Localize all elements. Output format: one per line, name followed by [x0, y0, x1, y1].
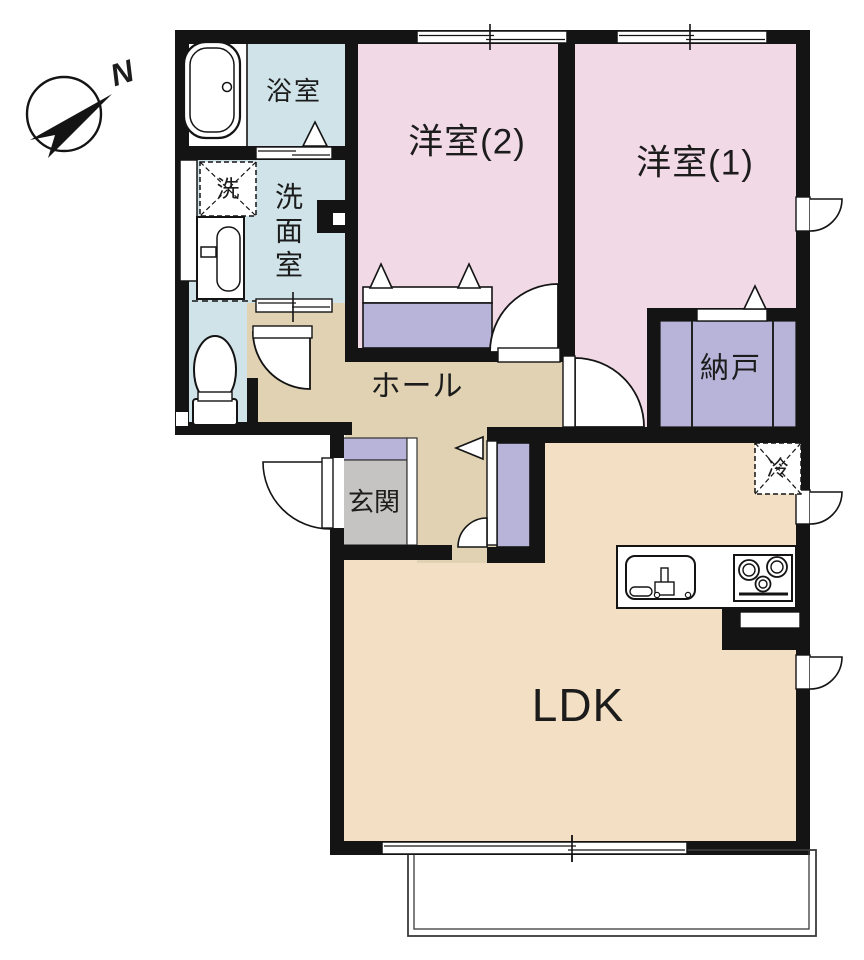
- kitchen-sink: [626, 556, 695, 599]
- stove: [734, 555, 792, 601]
- pipe-space: [333, 213, 345, 225]
- vanity-sink: [197, 217, 244, 299]
- balcony: [408, 850, 816, 936]
- bathtub: [184, 42, 240, 138]
- room-label-fridge: 冷: [767, 458, 789, 480]
- compass: [27, 77, 112, 158]
- casement-window-western1: [796, 197, 842, 231]
- casement-window-ldk-lower: [796, 655, 842, 689]
- floor-plan: N 浴室 洗 洗面室 ホール 玄関 洋室(2) 洋室(1) 納戸 冷 LDK: [0, 0, 864, 960]
- room-label-ldk: LDK: [532, 682, 624, 728]
- kitchen-hatch: [740, 612, 800, 628]
- toilet-window: [176, 412, 188, 426]
- toilet-fixture: [193, 336, 237, 425]
- room-label-bath: 浴室: [266, 78, 322, 104]
- room-label-hall: ホール: [371, 372, 464, 402]
- kitchen-counter: [617, 546, 796, 608]
- genkan-step: [341, 438, 407, 460]
- room-label-western2: 洋室(2): [408, 125, 526, 160]
- shoe-cabinet: [497, 443, 530, 547]
- room-label-washroom: 洗面室: [273, 182, 301, 284]
- closet-western2: [363, 287, 492, 348]
- room-label-western1: 洋室(1): [636, 146, 754, 181]
- room-label-laundry: 洗: [217, 178, 240, 201]
- entrance-door: [263, 458, 344, 529]
- room-label-nando: 納戸: [700, 355, 762, 384]
- room-label-genkan: 玄関: [348, 489, 400, 515]
- casement-window-ldk-upper: [796, 490, 842, 524]
- linen-cabinet: [180, 160, 197, 281]
- ldk-window-pane: [382, 842, 687, 854]
